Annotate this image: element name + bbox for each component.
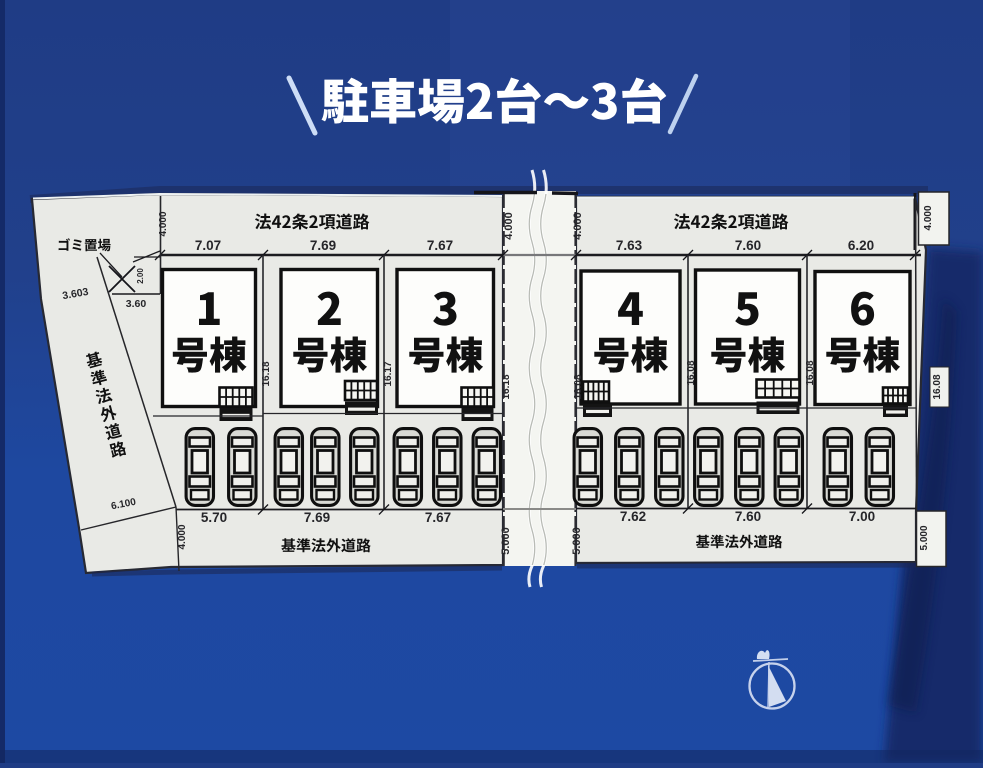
- svg-text:16.08: 16.08: [686, 360, 697, 385]
- svg-text:6.20: 6.20: [848, 238, 874, 253]
- svg-text:7.00: 7.00: [849, 509, 875, 524]
- svg-text:16.18: 16.18: [501, 374, 512, 399]
- svg-text:5.000: 5.000: [919, 525, 930, 550]
- svg-text:7.63: 7.63: [616, 238, 643, 253]
- svg-text:5.000: 5.000: [500, 527, 512, 555]
- svg-text:4.000: 4.000: [158, 211, 169, 236]
- svg-text:4.000: 4.000: [503, 212, 515, 240]
- svg-text:16.17: 16.17: [383, 361, 394, 386]
- svg-text:7.60: 7.60: [735, 509, 761, 524]
- svg-text:7.07: 7.07: [195, 238, 221, 253]
- svg-text:2.00: 2.00: [136, 268, 145, 284]
- svg-text:16.08: 16.08: [573, 374, 584, 399]
- svg-text:7.62: 7.62: [620, 509, 646, 524]
- svg-text:16.18: 16.18: [261, 361, 272, 386]
- svg-text:4.000: 4.000: [177, 524, 188, 549]
- svg-text:7.67: 7.67: [425, 510, 451, 525]
- svg-text:5.000: 5.000: [571, 527, 583, 555]
- svg-text:7.69: 7.69: [310, 238, 336, 253]
- svg-text:3.60: 3.60: [126, 298, 147, 310]
- svg-text:7.69: 7.69: [304, 510, 330, 525]
- svg-text:4.000: 4.000: [923, 205, 934, 230]
- svg-text:7.60: 7.60: [735, 238, 761, 253]
- svg-text:5.70: 5.70: [201, 510, 227, 525]
- svg-text:7.67: 7.67: [427, 238, 453, 253]
- svg-text:4.000: 4.000: [572, 212, 584, 240]
- svg-text:16.08: 16.08: [932, 374, 943, 399]
- svg-text:16.08: 16.08: [805, 360, 816, 385]
